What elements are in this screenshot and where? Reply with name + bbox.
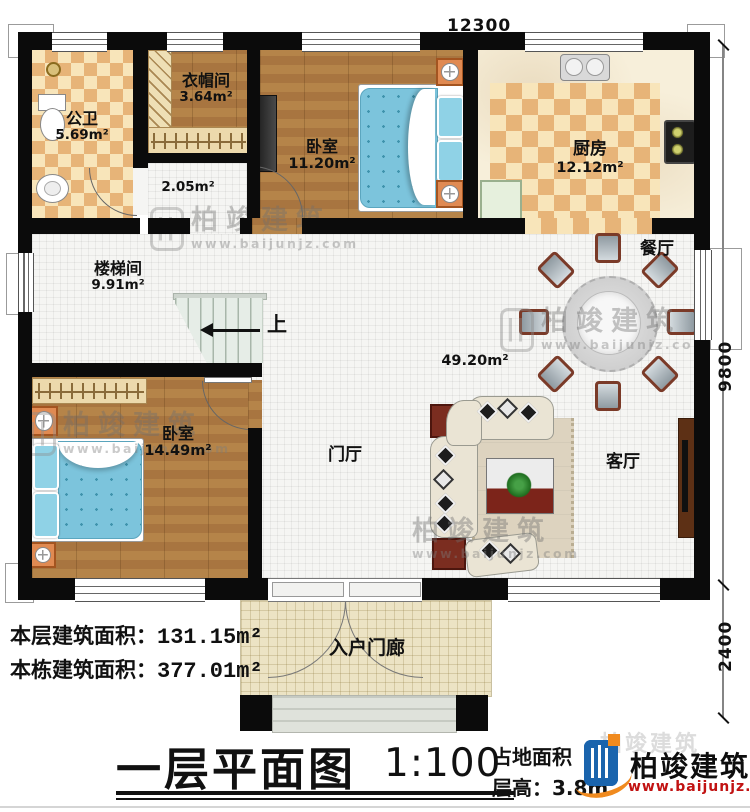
- wall: [205, 578, 268, 600]
- burner: [671, 126, 684, 139]
- brand-url: www.baijunjz.com: [628, 779, 750, 795]
- tv: [682, 440, 688, 512]
- wall: [422, 578, 508, 600]
- room-label-small-hall: 2.05m²: [161, 180, 214, 196]
- sink-basin: [565, 58, 583, 76]
- room-label-living: 客厅: [606, 453, 640, 473]
- sink-basin: [44, 181, 61, 196]
- wall: [107, 32, 167, 50]
- cloakroom-hanger-rod: [148, 127, 249, 155]
- room-label-bathroom: 公卫5.69m²: [55, 110, 108, 144]
- sink-basin: [586, 58, 604, 76]
- pillow: [437, 140, 464, 182]
- nightstand: [436, 58, 464, 86]
- floor-plan-canvas: 12300 9800 2400: [0, 0, 750, 812]
- wall: [18, 218, 140, 234]
- wall: [248, 428, 262, 600]
- watermark: 柏竣建筑www.baijunjz.com: [500, 308, 709, 352]
- room-label-stairwell: 楼梯间9.91m²: [91, 260, 144, 294]
- porch-steps: [272, 695, 457, 733]
- wall: [420, 32, 525, 50]
- room-label-porch: 入户门廊: [329, 638, 405, 660]
- dimension-tick: [717, 712, 729, 724]
- entry-door-panel: [349, 582, 421, 597]
- wall: [247, 50, 260, 218]
- title-underline: [116, 791, 514, 795]
- room-label-kitchen: 厨房12.12m²: [556, 140, 623, 176]
- room-label-foyer: 门厅: [328, 446, 362, 466]
- stairs-arrow-line: [210, 329, 260, 332]
- dimension-label-right: 9800: [716, 348, 736, 392]
- wall: [133, 153, 248, 163]
- towel-hook: [46, 62, 61, 77]
- wall: [652, 218, 710, 234]
- nightstand: [436, 180, 464, 208]
- stairs-arrow-head: [200, 323, 213, 337]
- room-label-open-area: 49.20m²: [441, 353, 508, 370]
- page-divider: [0, 806, 750, 808]
- kitchen-opening: [525, 218, 652, 234]
- wall: [18, 312, 32, 600]
- dining-chair: [595, 233, 621, 263]
- fridge: [480, 180, 522, 221]
- window: [694, 250, 712, 340]
- wall: [223, 32, 302, 50]
- window: [302, 32, 420, 52]
- window: [52, 32, 107, 52]
- plan-scale: 1:100: [384, 741, 501, 786]
- land-area-label: 占地面积: [492, 741, 572, 770]
- brand-watermark-icon: [500, 308, 534, 352]
- wall: [18, 578, 75, 600]
- window: [525, 32, 643, 52]
- room-label-dining: 餐厅: [640, 240, 674, 260]
- wall: [694, 340, 710, 600]
- plan-title: 一层平面图: [116, 733, 356, 798]
- dimension-line-right: [722, 45, 724, 585]
- room-label-bedroom-top: 卧室11.20m²: [288, 138, 355, 173]
- closet-hanger-rod: [32, 378, 147, 404]
- cloakroom-closet: [148, 50, 172, 129]
- wall: [660, 578, 710, 600]
- wall: [302, 218, 525, 234]
- wall: [32, 363, 262, 377]
- plant: [504, 470, 534, 500]
- dimension-label-bottom-right: 2400: [716, 628, 736, 672]
- room-label-cloakroom: 衣帽间3.64m²: [179, 72, 232, 106]
- wall: [148, 218, 190, 234]
- sofa-corner: [446, 400, 482, 446]
- dimension-tick: [717, 579, 729, 591]
- logo-accent: [608, 734, 620, 746]
- porch-column: [240, 695, 272, 731]
- nightstand: [30, 542, 56, 568]
- window: [508, 578, 660, 602]
- window: [18, 253, 34, 312]
- watermark: 柏竣建筑www.baijunjz.com: [412, 518, 580, 561]
- wall: [133, 50, 148, 168]
- dining-chair: [595, 381, 621, 411]
- leader-box: [710, 248, 742, 350]
- porch-column: [456, 695, 488, 731]
- pillow: [437, 96, 464, 138]
- window: [75, 578, 205, 602]
- title-underline-thin: [116, 798, 514, 800]
- wall: [463, 50, 478, 218]
- room-label-bedroom-lower: 卧室14.49m²: [144, 425, 211, 460]
- floor-area-line: 本层建筑面积：131.15m²: [10, 620, 263, 650]
- burner: [671, 143, 684, 156]
- wall: [240, 218, 252, 234]
- stairs-up-label: 上: [267, 313, 287, 336]
- total-area-line: 本栋建筑面积：377.01m²: [10, 654, 263, 684]
- entry-door-panel: [272, 582, 344, 597]
- window: [167, 32, 223, 52]
- bedroom-lower-door-leaf: [204, 377, 252, 383]
- bed-blanket: [408, 89, 435, 205]
- pillow: [33, 492, 59, 538]
